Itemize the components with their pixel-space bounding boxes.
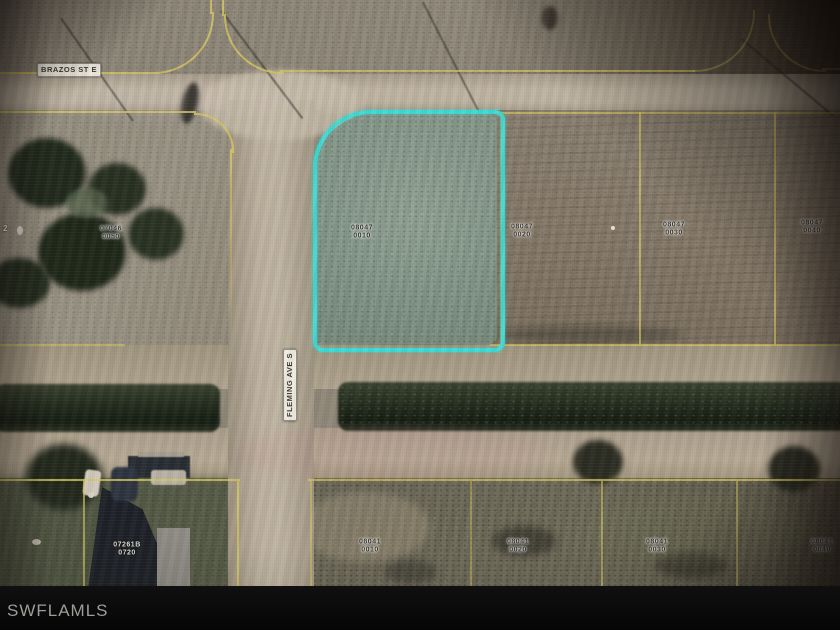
- mls-watermark: SWFLAMLS: [7, 602, 109, 620]
- parcel-label: 080410020: [507, 539, 529, 554]
- mls-listing-photo: 0704600500804700100804700200804700300804…: [0, 0, 840, 630]
- parcel-label: 080470020: [511, 224, 533, 239]
- watermark-bar: SWFLAMLS: [0, 586, 840, 630]
- parcel-label: 080470040: [801, 220, 823, 235]
- parcel-label: 080410010: [359, 539, 381, 554]
- street-label: FLEMING AVE S: [283, 349, 297, 421]
- parcel-label: 080470030: [663, 222, 685, 237]
- parcel-label: 080470010: [351, 225, 373, 240]
- aerial-map-photo: 0704600500804700100804700200804700300804…: [0, 0, 840, 587]
- parcel-label: 080410040: [811, 539, 833, 554]
- street-label: BRAZOS ST E: [37, 63, 101, 77]
- parcel-label: 080410030: [646, 539, 668, 554]
- labels-layer: 0704600500804700100804700200804700300804…: [0, 0, 840, 587]
- parcel-label: 070460050: [100, 226, 122, 241]
- edge-label-fragment: 2: [3, 224, 7, 233]
- parcel-label: 07261B0720: [113, 542, 141, 557]
